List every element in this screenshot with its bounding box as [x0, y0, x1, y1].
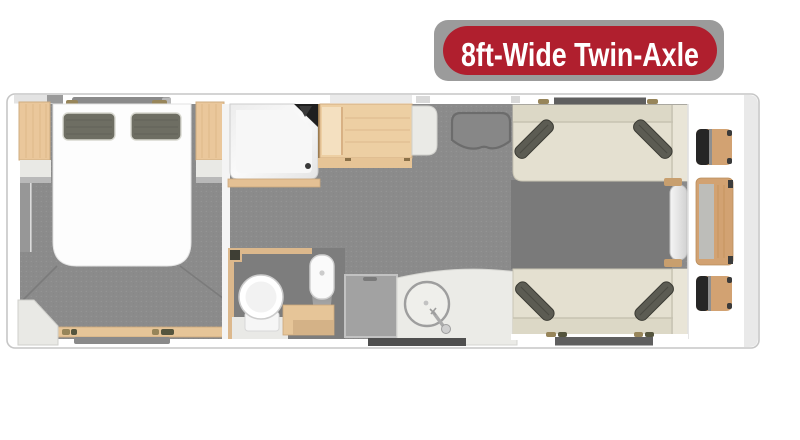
- svg-text:8ft-Wide Twin-Axle: 8ft-Wide Twin-Axle: [461, 36, 699, 73]
